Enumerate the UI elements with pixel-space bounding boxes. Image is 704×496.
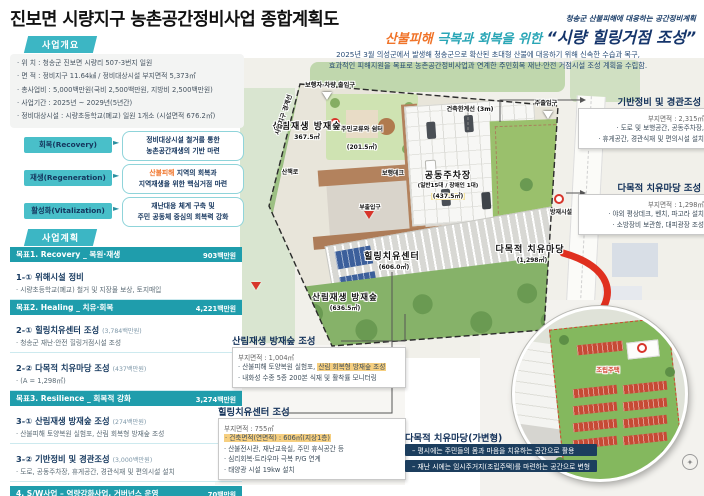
car-icon: [464, 115, 474, 133]
strategy-accent: 산불피해: [149, 169, 174, 177]
strategy-arrow-icon: ►: [113, 171, 119, 180]
strategy-arrow-icon: ►: [113, 138, 119, 147]
plan-item: 2-① 힐링치유센터 조성(3,784백만원) · 청송군 재난·안전 힐링거점…: [10, 315, 242, 353]
plan-header-badge: 사업계획: [24, 229, 97, 246]
car-icon: [426, 122, 436, 140]
goal-amount: 903백만원: [203, 250, 236, 260]
annotation-bullet: · 야외 평상데크, 벤치, 파고라 설치: [584, 209, 704, 220]
goal-title: 4. S/W사업 – 역량강화사업, 거버넌스 운영: [16, 488, 159, 496]
annotation-area: 부지면적 : 2,315㎡: [584, 113, 704, 123]
zone-label-garden: 주민교류와 쉼터: [322, 124, 402, 133]
zone-label-forest2: 산림재생 방재숲: [295, 291, 395, 303]
context-building-2: [612, 243, 658, 277]
variable-line: – 재난 시에는 임시주거지(조립주택)를 마련하는 공간으로 변형: [405, 460, 597, 472]
overview-item: · 정비대상시설 : 시량초등학교(폐교) 일원 1개소 (시설면적 676.2…: [17, 110, 237, 123]
zone-area-parking: (437.5㎡): [418, 191, 478, 200]
tree-icon: [412, 293, 434, 315]
zone-area-madang: (1,298㎡): [482, 255, 582, 264]
overview-item: · 면 적 : 정비지구 11.64㎢ / 정비대상시설 부지면적 5,373㎡: [17, 70, 237, 83]
goal-amount: 70백만원: [208, 489, 236, 496]
plan-goal-row: 목표1. Recovery _ 복원·재생 903백만원: [10, 247, 242, 262]
item-bullet: · 청송군 재난·안전 힐링거점시설 조성: [16, 339, 236, 348]
strategy-label-vitalization: 활성화(Vitalization): [24, 203, 112, 219]
plan-document: 산림재생 방재숲 367.5㎡ 주민교류와 쉼터 (201.5㎡) 공동주차장 …: [0, 0, 704, 496]
bullet-highlight: 산림 회복형 방재숲 조성: [317, 363, 386, 371]
item-title: 2-① 힐링치유센터 조성: [16, 325, 99, 335]
strategy-text: 재난대응 체계 구축 및: [151, 202, 214, 210]
overview-item: · 사업기간 : 2025년 ~ 2029년(5년간): [17, 97, 237, 110]
annotation-bullet: · 휴게공간, 경관식재 및 편의시설 설치: [584, 134, 704, 145]
plan-goal-row: 목표3. Resilience _ 회복적 강화 3,274백만원: [10, 391, 242, 406]
item-title: 3-① 산림재생 방재숲 조성: [16, 416, 110, 426]
item-title: 1-① 위해시설 정비: [16, 272, 84, 282]
car-icon: [481, 192, 491, 210]
label-sub-entrance: 부출입구: [348, 202, 392, 211]
strategy-desc-recovery: 정비대상시설 철거를 통한 농촌공간재생의 기반 마련: [122, 131, 244, 161]
zone-area-garden: (201.5㎡): [322, 142, 402, 151]
overview-item: · 위 치 : 청송군 진보면 시량리 507-3번지 일원: [17, 57, 237, 70]
entrance-marker-icon: [322, 92, 332, 100]
annotation-bullet: · 내화성 수종 5종 200본 식재 및 활착률 모니터링: [238, 373, 400, 384]
zone-area-forest1: 367.5㎡: [252, 132, 362, 141]
annotation-area: 부지면적 : 755㎡: [224, 423, 400, 433]
plan-table: 목표1. Recovery _ 복원·재생 903백만원 1-① 위해시설 정비…: [10, 247, 242, 496]
disaster-facility-icon: [554, 194, 564, 204]
annotation-bullet: · 도로 및 보행공간, 공동주차장,: [584, 123, 704, 134]
goal-amount: 4,221백만원: [196, 303, 236, 313]
goal-title: 목표3. Resilience _ 회복적 강화: [16, 393, 131, 404]
label-setback-line: 건축한계선 (3m): [438, 104, 502, 113]
headline-body-1: 2025년 3월 의성군에서 발생해 청송군으로 확산된 초대형 산불에 대응하…: [276, 50, 700, 60]
strategy-label-recovery: 회복(Recovery): [24, 137, 112, 153]
annotation-area: 부지면적 : 1,004㎡: [238, 352, 400, 362]
strategy-desc-line: 농촌공간재생의 기반 마련: [146, 146, 220, 157]
callout-center-title: 힐링치유센터 조성: [218, 404, 290, 418]
plan-item: 2-② 다목적 치유마당 조성(437백만원) · (A = 1,298㎡): [10, 353, 242, 391]
zone-sub-parking: (일반15대 / 장애인 1대): [398, 181, 498, 189]
annotation-highlight-line: · 건축면적(연면적) : 606㎡(지상1층): [224, 433, 400, 444]
tree-icon: [516, 282, 538, 304]
strategy-desc-line: 정비대상시설 철거를 통한: [146, 135, 220, 146]
goal-title: 목표2. Healing _ 치유·회복: [16, 302, 113, 313]
plan-goal-row: 4. S/W사업 – 역량강화사업, 거버넌스 운영 70백만원: [10, 486, 242, 496]
annotation-bullet: · 소방장비 보관함, 대피광장 조성: [584, 220, 704, 231]
goal-amount: 3,274백만원: [196, 394, 236, 404]
annotation-bullet: · 산불피해 토양복원 실험포, 산림 회복형 방재숲 조성: [238, 362, 400, 373]
annotation-basis-box: 부지면적 : 2,315㎡ · 도로 및 보행공간, 공동주차장, · 휴게공간…: [578, 108, 704, 149]
headline-body-2: 효과적인 피해지원을 목표로 농촌공간정비사업과 연계한 주민회복 재난·안전 …: [276, 61, 700, 71]
zone-area-parking-value: (437.5㎡): [431, 193, 465, 200]
strategy-arrow-icon: ►: [113, 204, 119, 213]
headline-tagline: 청송군 산불피해에 대응하는 공간정비계획: [396, 13, 696, 24]
item-amount: (3,784백만원): [102, 328, 142, 335]
tree-icon: [354, 318, 379, 343]
plan-header-label: 사업계획: [42, 231, 79, 244]
zone-area-center: (606.0㎡): [344, 262, 444, 271]
item-bullet: · 산불피해 토양복원 실험포, 산림 회복형 방재숲 조성: [16, 430, 236, 439]
tree-icon: [469, 310, 494, 335]
item-amount: (437백만원): [113, 366, 147, 373]
headline-lead: 산불피해 극복과 회복을 위한 “시량 힐링거점 조성”: [266, 24, 696, 48]
strategy-text: 지역의 회복과: [174, 169, 216, 177]
overview-header-label: 사업개요: [42, 38, 79, 51]
strategy-desc-line: 지역재생을 위한 핵심거점 마련: [139, 179, 227, 190]
label-main-entrance: 주출입구: [518, 98, 574, 107]
plan-item: 3-② 기반정비 및 경관조성(3,000백만원) · 도로, 공동주차장, 휴…: [10, 444, 242, 482]
plan-goal-row: 목표2. Healing _ 치유·회복 4,221백만원: [10, 300, 242, 315]
item-amount: (274백만원): [113, 419, 147, 426]
strategy-desc-line: 산불피해 지역의 회복과: [149, 168, 216, 179]
callout-forest-box: 부지면적 : 1,004㎡ · 산불피해 토양복원 실험포, 산림 회복형 방재…: [232, 347, 406, 388]
annotation-madang-box: 부지면적 : 1,298㎡ · 야외 평상데크, 벤치, 파고라 설치 · 소방…: [578, 194, 704, 235]
item-bullet: · 시량초등학교(폐교) 철거 및 지장물 보상, 토지매입: [16, 286, 236, 295]
zone-label-center: 힐링치유센터: [342, 249, 442, 262]
annotation-bullet: · 산불전시관, 재난교육실, 주민 휴식공간 등: [224, 444, 400, 455]
annotation-area: 부지면적 : 1,298㎡: [584, 199, 704, 209]
boundary-marker-icon: [251, 282, 261, 290]
bullet-text: · 산불피해 토양복원 실험포,: [238, 363, 317, 371]
item-title: 3-② 기반정비 및 경관조성: [16, 454, 110, 464]
annotation-basis-title: 기반정비 및 경관조성: [575, 94, 701, 108]
item-bullet: · 도로, 공동주차장, 휴게공간, 경관식재 및 편의시설 설치: [16, 468, 236, 477]
tree-icon: [559, 335, 569, 345]
zone-area-forest2: (636.5㎡): [295, 303, 395, 312]
headline-accent: 산불피해: [385, 32, 433, 47]
tree-icon: [661, 449, 671, 459]
strategy-desc-regeneration: 산불피해 지역의 회복과 지역재생을 위한 핵심거점 마련: [122, 164, 244, 194]
compass-icon: ✦: [682, 454, 698, 470]
entrance-marker-icon: [543, 111, 553, 119]
headline-rest: 극복과 회복을 위한: [433, 32, 547, 47]
annotation-bullet: · 심리회복·트라우마 극복 P/G 연계: [224, 454, 400, 465]
label-ped-entrance: 보행자·차량 출입구: [292, 80, 368, 89]
item-title: 2-② 다목적 치유마당 조성: [16, 363, 110, 373]
bullet-highlight: · 건축면적(연면적) : 606㎡(지상1층): [224, 434, 331, 442]
inset-disaster-icon: [637, 343, 647, 353]
headline-quote: “시량 힐링거점 조성”: [546, 28, 696, 47]
sub-entrance-marker-icon: [364, 211, 374, 219]
overview-panel: · 위 치 : 청송군 진보면 시량리 507-3번지 일원 · 면 적 : 정…: [10, 54, 244, 128]
strategy-desc-line: 주민 공동체 중심의 회복력 강화: [138, 212, 229, 223]
tree-icon: [665, 367, 675, 377]
inset-housing-label: 조립주택: [573, 365, 643, 374]
annotation-bullet: · 태양광 시설 19kw 설치: [224, 465, 400, 476]
annotation-madang-title: 다목적 치유마당 조성: [575, 180, 701, 194]
variable-line: – 평시에는 주민들의 몸과 마음을 치유하는 공간으로 활용: [405, 444, 597, 456]
strategy-label-regeneration: 재생(Regeneration): [24, 170, 112, 186]
zone-label-madang: 다목적 치유마당: [480, 242, 580, 255]
overview-header-badge: 사업개요: [24, 36, 97, 53]
plan-item: 3-① 산림재생 방재숲 조성(274백만원) · 산불피해 토양복원 실험포,…: [10, 406, 242, 444]
overview-item: · 총사업비 : 5,000백만원(국비 2,500백만원, 지방비 2,500…: [17, 84, 237, 97]
goal-title: 목표1. Recovery _ 복원·재생: [16, 249, 120, 260]
strategy-desc-line: 재난대응 체계 구축 및: [151, 201, 214, 212]
callout-forest-title: 산림재생 방재숲 조성: [232, 333, 315, 347]
strategy-desc-vitalization: 재난대응 체계 구축 및 주민 공동체 중심의 회복력 강화: [122, 197, 244, 227]
callout-center-box: 부지면적 : 755㎡ · 건축면적(연면적) : 606㎡(지상1층) · 산…: [218, 418, 406, 480]
item-bullet: · (A = 1,298㎡): [16, 377, 236, 386]
callout-variable-lines: – 평시에는 주민들의 몸과 마음을 치유하는 공간으로 활용 – 재난 시에는…: [405, 440, 597, 472]
plan-item: 1-① 위해시설 정비 · 시량초등학교(폐교) 철거 및 지장물 보상, 토지…: [10, 262, 242, 300]
strategy-text: 정비대상시설 철거를 통한: [146, 136, 220, 144]
label-deck: 보행데크: [368, 168, 418, 177]
item-amount: (3,000백만원): [113, 457, 153, 464]
label-trail: 산책로: [268, 167, 312, 176]
